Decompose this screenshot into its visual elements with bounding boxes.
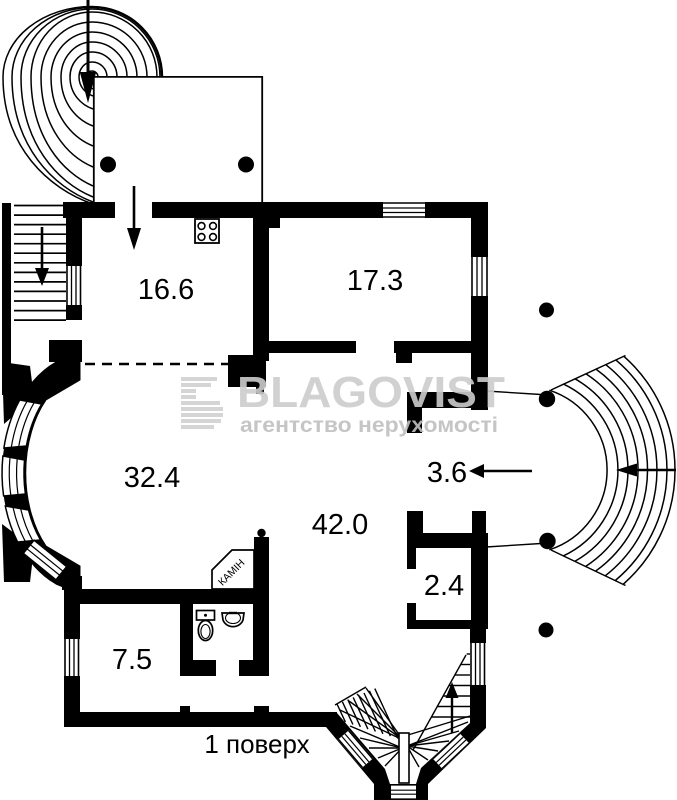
svg-text:17.3: 17.3 — [347, 265, 403, 297]
svg-text:2.4: 2.4 — [424, 570, 464, 602]
svg-text:3.6: 3.6 — [427, 457, 467, 489]
svg-text:32.4: 32.4 — [124, 462, 180, 494]
svg-text:1 поверх: 1 поверх — [204, 729, 309, 759]
svg-text:7.5: 7.5 — [112, 644, 152, 676]
svg-text:42.0: 42.0 — [312, 509, 368, 541]
svg-text:агентство нерухомості: агентство нерухомості — [240, 414, 498, 437]
svg-text:BLAGOVIST: BLAGOVIST — [237, 368, 505, 417]
svg-text:16.6: 16.6 — [138, 274, 194, 306]
